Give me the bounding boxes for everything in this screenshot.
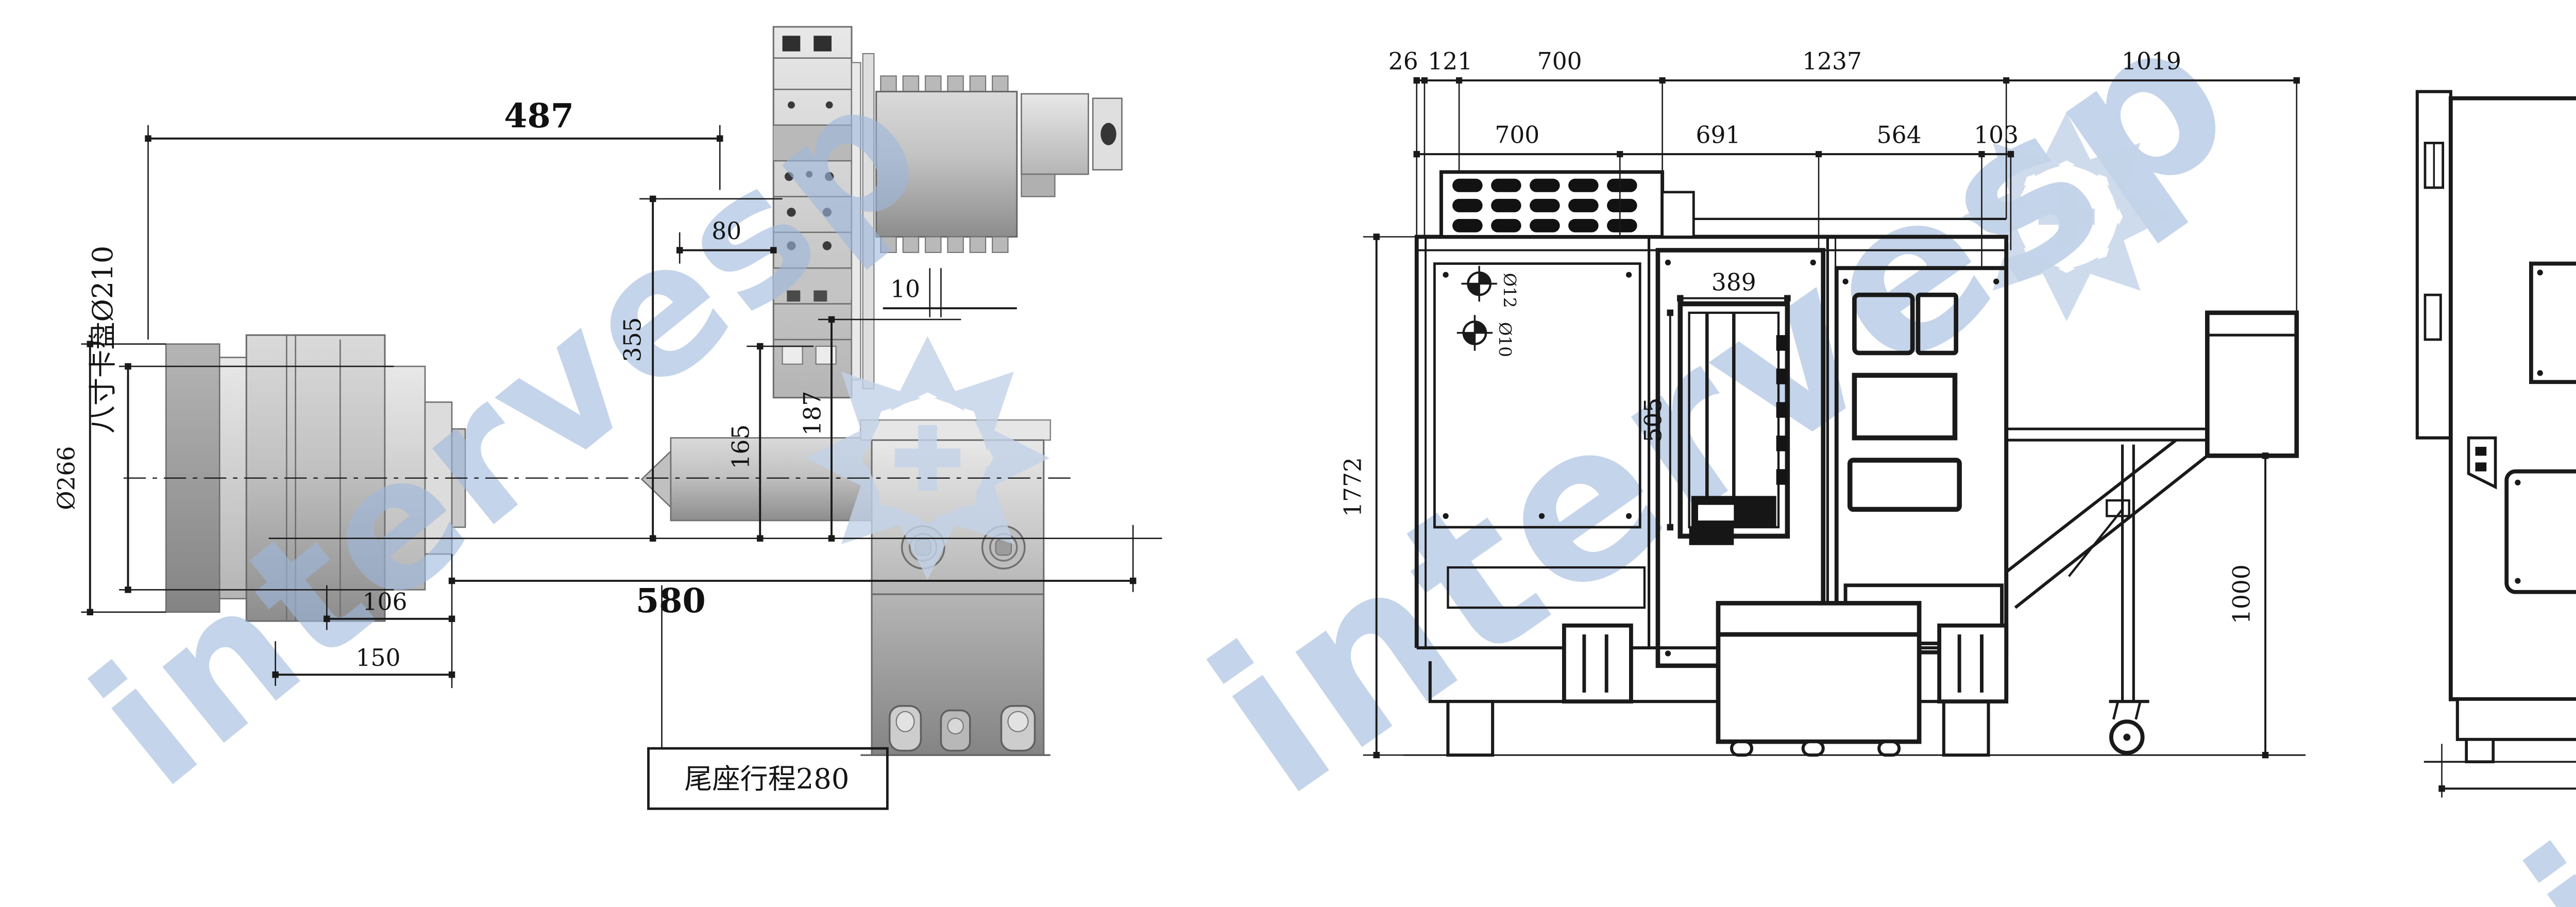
dim-355: 355: [619, 317, 646, 362]
lift-point-icon-top: [1461, 266, 1497, 301]
dim-106: 106: [363, 588, 408, 615]
lift-point-label-top: Ø12: [1500, 273, 1519, 308]
access-panel: [2506, 472, 2576, 592]
technical-drawing-canvas: intervesp intervesp intervesp 487 80 10 …: [0, 0, 2576, 907]
dim-window-width: 389: [1711, 269, 1756, 296]
dim-10: 10: [890, 276, 920, 303]
watermark-layer: intervesp intervesp intervesp: [57, 0, 2576, 907]
chuck-size-label: 八寸卡盘Ø210: [87, 246, 119, 434]
dim-1000: 1000: [2228, 564, 2256, 624]
dim-487: 487: [504, 96, 574, 136]
dim-dia-266: Ø266: [53, 446, 80, 510]
dim-top-700: 700: [1537, 47, 1582, 75]
dim-top-121: 121: [1428, 47, 1472, 75]
dim-top-1237: 1237: [1802, 47, 1862, 75]
dim-top-1019: 1019: [2122, 47, 2181, 75]
chip-conveyor-front: [2006, 313, 2297, 753]
dim-top-26: 26: [1388, 47, 1418, 75]
dim-mid-700: 700: [1495, 121, 1539, 148]
dim-150: 150: [356, 644, 401, 671]
side-cover-plate: [2531, 264, 2576, 382]
dim-window-height: 505: [1639, 398, 1667, 443]
tailstock-travel-label: 尾座行程280: [684, 763, 849, 795]
dim-mid-103: 103: [1974, 121, 2019, 148]
dim-80: 80: [711, 217, 741, 245]
lift-point-icon-bottom: [1457, 315, 1493, 350]
roof-vent-grille: [1452, 179, 1637, 232]
snowflake-icon-1: [806, 336, 1049, 580]
dim-187: 187: [799, 391, 826, 436]
dim-mid-691: 691: [1696, 121, 1741, 148]
lift-point-label-bottom: Ø10: [1495, 322, 1515, 357]
dim-mid-564: 564: [1877, 121, 1922, 148]
right-view: 51: [2417, 58, 2576, 798]
dim-1772: 1772: [1339, 457, 1366, 517]
dim-580: 580: [636, 581, 706, 620]
dim-165: 165: [727, 425, 755, 469]
